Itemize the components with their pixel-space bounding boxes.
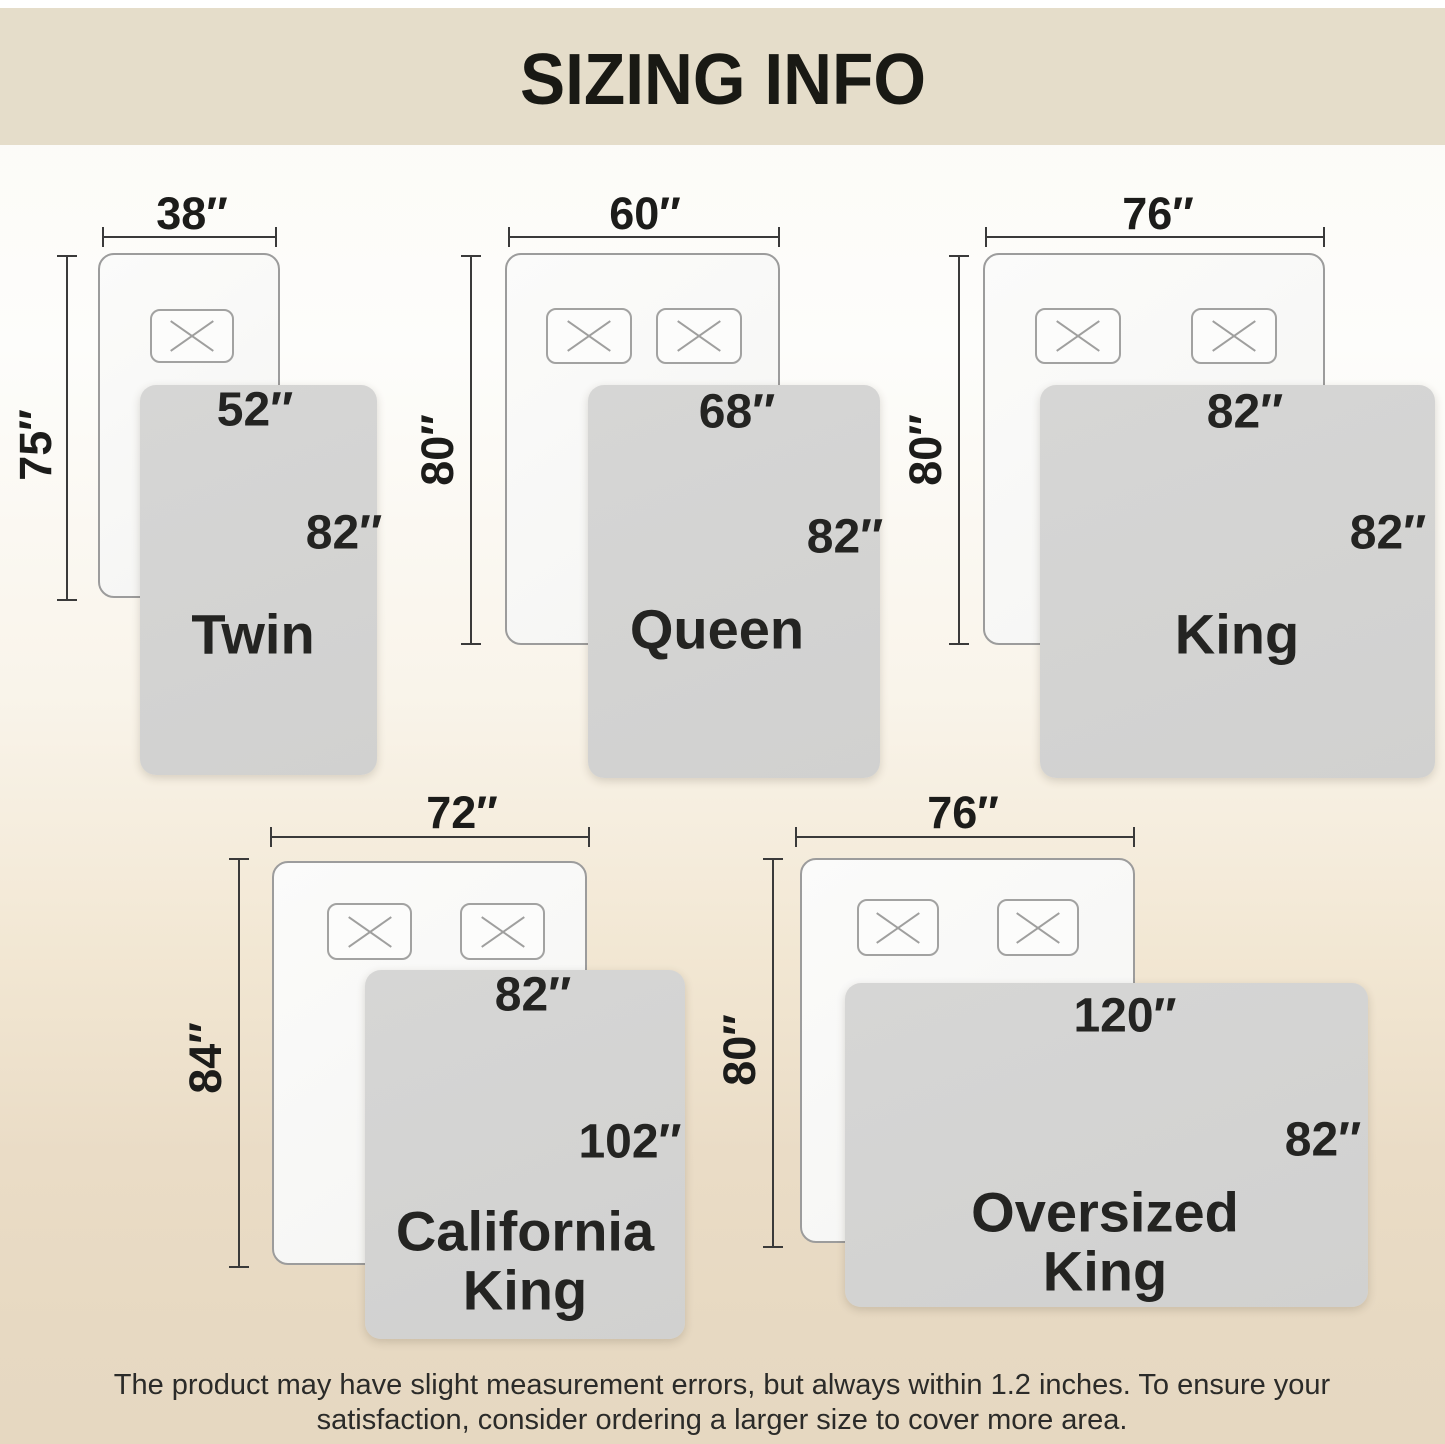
blanket-length-label: 82″ <box>306 506 382 561</box>
footer-note: The product may have slight measurement … <box>32 1368 1412 1438</box>
blanket-length-label: 82″ <box>807 510 883 565</box>
top-white-strip <box>0 0 1445 8</box>
pillow-icon <box>327 903 412 960</box>
bed-width-label: 76″ <box>927 787 999 839</box>
blanket-width-label: 68″ <box>699 385 775 440</box>
pillow-icon <box>1191 308 1277 364</box>
width-measure-line <box>270 836 590 838</box>
width-measure-line <box>985 236 1325 238</box>
size-name-label: California King <box>335 1202 715 1321</box>
pillow-icon <box>857 899 939 956</box>
bed-length-label: 80″ <box>900 414 952 486</box>
bed-width-label: 72″ <box>426 787 498 839</box>
page-title: SIZING INFO <box>519 39 925 121</box>
blanket <box>140 385 377 775</box>
blanket-length-label: 82″ <box>1350 506 1426 561</box>
width-measure-line <box>102 236 277 238</box>
blanket-length-label: 102″ <box>578 1115 681 1170</box>
width-measure-line <box>795 836 1135 838</box>
sizing-info-page: SIZING INFO 38″ 75″ 52″ 82″ Twin 60″ 80″… <box>0 0 1445 1444</box>
pillow-icon <box>997 899 1079 956</box>
width-measure-line <box>508 236 780 238</box>
pillow-icon <box>656 308 742 364</box>
blanket-width-label: 52″ <box>217 383 293 438</box>
bed-width-label: 38″ <box>156 188 228 240</box>
blanket-width-label: 82″ <box>1207 385 1283 440</box>
pillow-icon <box>1035 308 1121 364</box>
header-band: SIZING INFO <box>0 8 1445 145</box>
bed-length-label: 80″ <box>412 414 464 486</box>
pillow-icon <box>460 903 545 960</box>
size-name-label: Queen <box>527 599 907 658</box>
pillow-icon <box>546 308 632 364</box>
blanket <box>1040 385 1435 778</box>
bed-width-label: 60″ <box>609 188 681 240</box>
blanket <box>588 385 880 778</box>
blanket-width-label: 82″ <box>495 968 571 1023</box>
footer-line-1: The product may have slight measurement … <box>32 1368 1412 1403</box>
bed-width-label: 76″ <box>1122 188 1194 240</box>
blanket-width-label: 120″ <box>1073 989 1176 1044</box>
bed-length-label: 84″ <box>180 1022 232 1094</box>
blanket-length-label: 82″ <box>1285 1113 1361 1168</box>
length-measure-line <box>66 255 68 601</box>
pillow-icon <box>150 309 234 363</box>
size-name-label: Oversized King <box>915 1183 1295 1302</box>
length-measure-line <box>958 255 960 645</box>
size-name-label: Twin <box>63 604 443 663</box>
length-measure-line <box>238 858 240 1268</box>
bed-length-label: 75″ <box>10 409 62 481</box>
footer-line-2: satisfaction, consider ordering a larger… <box>32 1403 1412 1438</box>
bed-length-label: 80″ <box>714 1014 766 1086</box>
length-measure-line <box>470 255 472 645</box>
size-name-label: King <box>1047 604 1427 663</box>
length-measure-line <box>772 858 774 1248</box>
